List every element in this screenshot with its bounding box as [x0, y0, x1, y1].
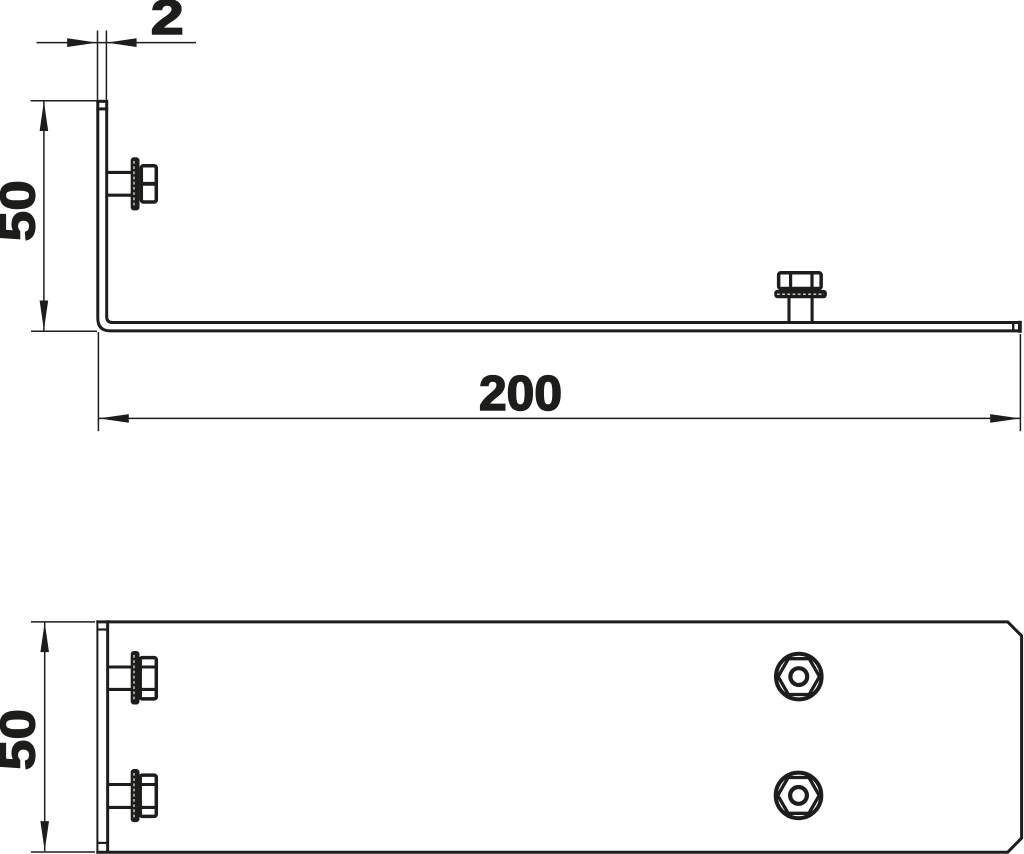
svg-text:200: 200 — [479, 367, 562, 421]
svg-text:50: 50 — [0, 180, 46, 242]
svg-text:2: 2 — [151, 0, 184, 45]
svg-text:50: 50 — [0, 709, 46, 771]
